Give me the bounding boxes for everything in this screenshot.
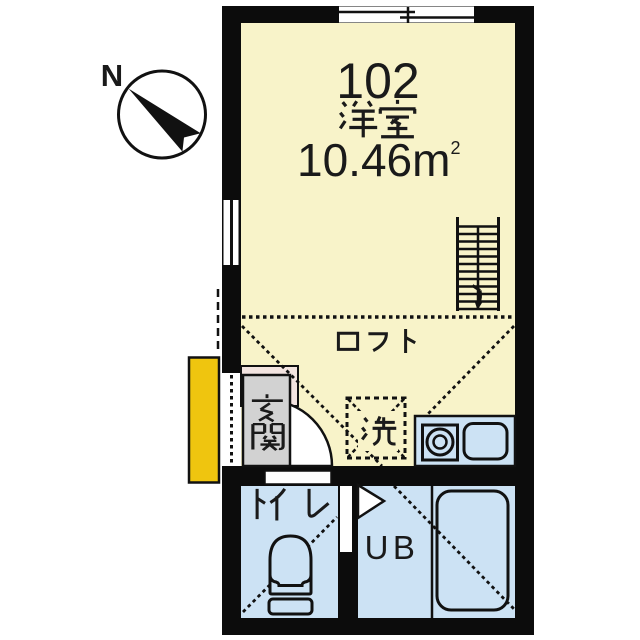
svg-text:N: N [101, 58, 123, 93]
svg-text:102: 102 [336, 53, 419, 109]
svg-text:10.46m: 10.46m [297, 134, 450, 186]
svg-text:UB: UB [365, 529, 420, 566]
svg-text:2: 2 [451, 138, 461, 158]
